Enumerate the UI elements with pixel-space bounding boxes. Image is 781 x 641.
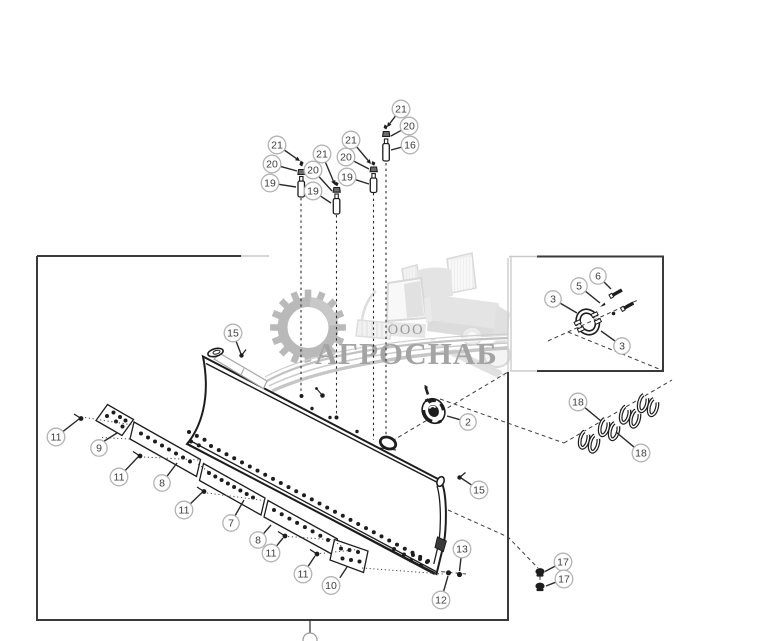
- svg-text:3: 3: [550, 294, 556, 306]
- svg-text:2: 2: [465, 417, 471, 429]
- svg-text:15: 15: [227, 328, 239, 340]
- svg-text:17: 17: [558, 574, 570, 586]
- svg-text:8: 8: [255, 535, 261, 547]
- svg-text:9: 9: [96, 443, 102, 455]
- svg-text:20: 20: [340, 152, 352, 164]
- svg-text:6: 6: [595, 271, 601, 283]
- svg-text:20: 20: [307, 165, 319, 177]
- svg-text:21: 21: [271, 140, 283, 152]
- svg-text:11: 11: [179, 505, 190, 517]
- svg-text:17: 17: [557, 557, 569, 569]
- svg-text:13: 13: [456, 544, 468, 556]
- svg-text:11: 11: [298, 569, 309, 581]
- svg-text:16: 16: [404, 140, 416, 152]
- svg-text:20: 20: [403, 121, 415, 133]
- svg-text:11: 11: [266, 548, 277, 560]
- svg-text:15: 15: [473, 485, 485, 497]
- svg-text:20: 20: [266, 159, 278, 171]
- svg-text:8: 8: [159, 478, 165, 490]
- svg-text:3: 3: [619, 341, 625, 353]
- svg-text:18: 18: [572, 397, 584, 409]
- svg-text:21: 21: [316, 149, 328, 161]
- svg-text:12: 12: [435, 595, 447, 607]
- svg-text:19: 19: [341, 172, 353, 184]
- svg-text:5: 5: [576, 281, 582, 293]
- svg-text:18: 18: [635, 448, 647, 460]
- svg-text:11: 11: [114, 472, 125, 484]
- svg-text:11: 11: [51, 432, 62, 444]
- svg-text:21: 21: [345, 135, 357, 147]
- svg-text:7: 7: [228, 518, 234, 530]
- svg-text:21: 21: [395, 104, 407, 116]
- svg-text:10: 10: [325, 580, 337, 592]
- svg-text:АГРОСНАБ: АГРОСНАБ: [315, 336, 498, 371]
- svg-text:19: 19: [307, 186, 319, 198]
- svg-text:19: 19: [264, 178, 276, 190]
